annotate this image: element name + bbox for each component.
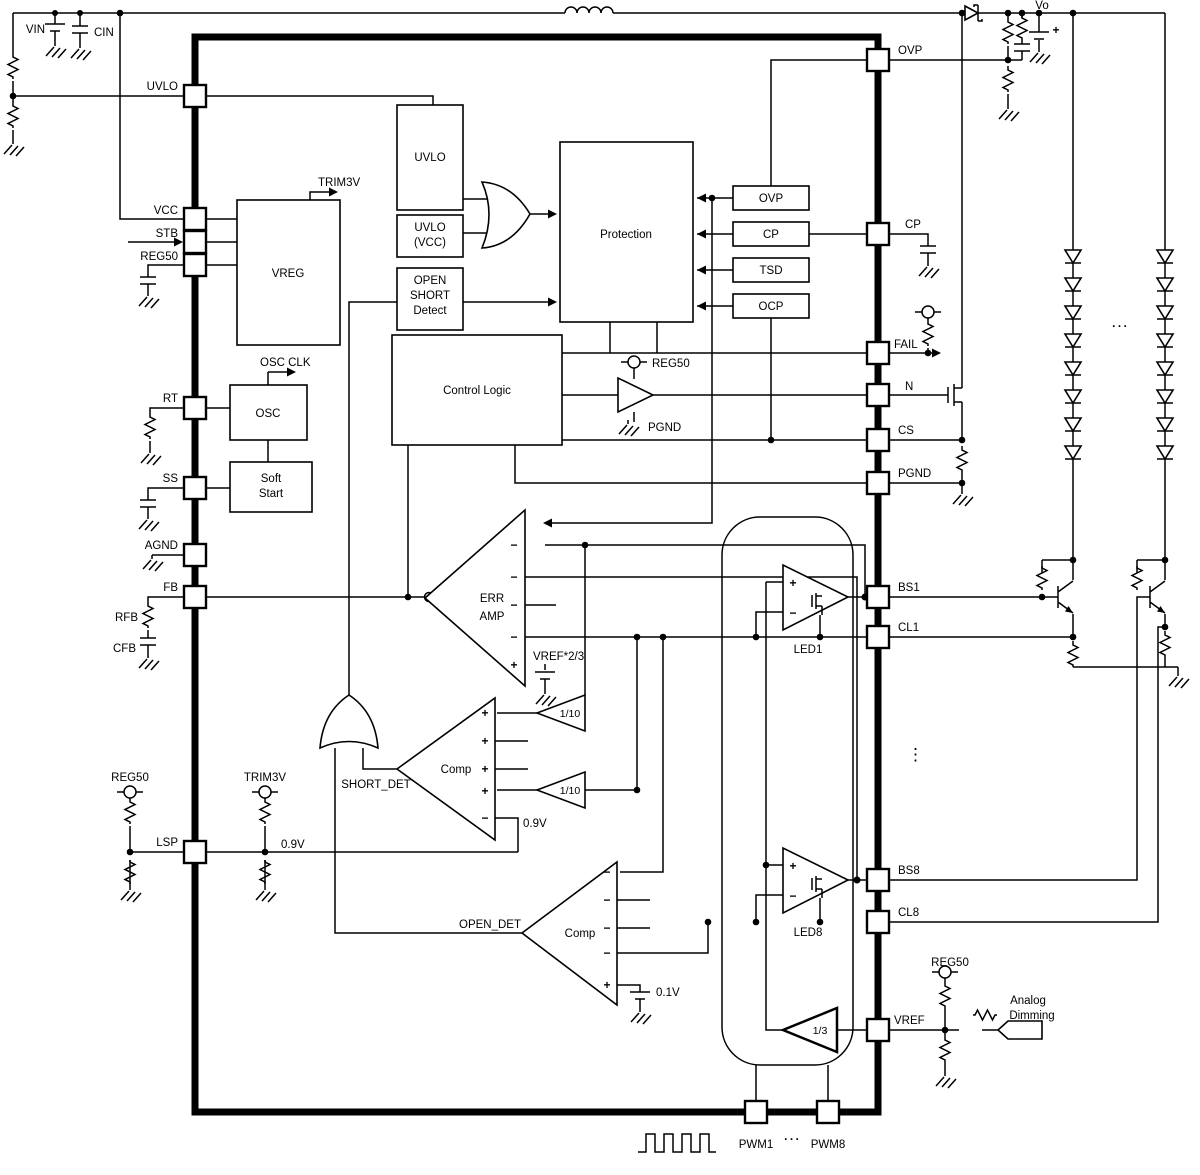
pin-label-vref: VREF	[894, 1015, 925, 1027]
short-comp-label: Comp	[441, 764, 472, 776]
schottky-diode	[965, 6, 978, 20]
vin-source	[45, 24, 65, 31]
pin-bs8	[867, 869, 889, 891]
protection-label: Protection	[600, 229, 652, 241]
erramp-minus-4: −	[510, 630, 517, 644]
pin-reg50	[184, 254, 206, 276]
uvlo-block-label: UVLO	[414, 152, 445, 164]
pin-label-cl1: CL1	[898, 622, 919, 634]
led1-plus: +	[789, 576, 796, 590]
trim3v-label: TRIM3V	[318, 177, 361, 189]
pin-label-cs: CS	[898, 425, 914, 437]
driver-reg50-label: REG50	[652, 358, 690, 370]
pin-rt	[184, 397, 206, 419]
pin-cp	[867, 223, 889, 245]
pin-label-reg50: REG50	[140, 251, 178, 263]
analog-dimming-connector	[998, 1021, 1042, 1039]
err-amp-label-1: ERR	[480, 593, 504, 605]
open-det-label: OPEN_DET	[459, 919, 521, 931]
osd-label-1: OPEN	[414, 275, 447, 287]
osc-clk-label: OSC CLK	[260, 357, 311, 369]
opencomp-minus-2: −	[603, 893, 610, 907]
led-strings-ellipsis: ...	[1111, 312, 1128, 331]
uvlo-vcc-label-2: (VCC)	[414, 237, 446, 249]
string2-transistor	[1150, 581, 1165, 613]
pin-label-ovp: OVP	[898, 45, 923, 57]
led1-minus: −	[789, 606, 796, 620]
osd-label-2: SHORT	[410, 290, 450, 302]
pin-label-bs1: BS1	[898, 582, 920, 594]
pin-pgnd	[867, 472, 889, 494]
shortcomp-plus-3: +	[481, 762, 488, 776]
shortcomp-minus: −	[481, 811, 488, 825]
driver-pgnd-label: PGND	[648, 422, 681, 434]
led-strings: ...	[889, 13, 1189, 922]
pin-n	[867, 384, 889, 406]
pin-label-pgnd: PGND	[898, 468, 931, 480]
pin-vcc	[184, 208, 206, 230]
short-det-label: SHORT_DET	[341, 779, 410, 791]
pin-label-ss: SS	[163, 473, 179, 485]
pin-label-bs8: BS8	[898, 865, 920, 877]
vref23-label: VREF*2/3	[533, 651, 584, 663]
pin-fb	[184, 586, 206, 608]
control-logic-label: Control Logic	[443, 385, 511, 397]
pin-ovp	[867, 49, 889, 71]
channel-ellipsis: ⋮	[907, 745, 925, 764]
pin-label-pwm1: PWM1	[739, 1139, 774, 1151]
div3-label: 1/3	[813, 1025, 828, 1037]
ocp-detector-label: OCP	[759, 301, 784, 313]
tsd-detector-label: TSD	[760, 265, 783, 277]
dimming-label: Dimming	[1009, 1010, 1054, 1022]
pin-cl1	[867, 626, 889, 648]
pin-agnd	[184, 544, 206, 566]
vin-label: VIN	[26, 24, 45, 36]
shortcomp-plus-1: +	[481, 706, 488, 720]
pin-ss	[184, 477, 206, 499]
led-driver-block-diagram: VIN CIN	[0, 0, 1200, 1175]
opencomp-minus-3: −	[603, 921, 610, 935]
pin-cl8	[867, 911, 889, 933]
pin-label-cp: CP	[905, 219, 921, 231]
soft-start-label-1: Soft	[261, 473, 282, 485]
string1-transistor	[1058, 581, 1073, 613]
pin-label-lsp: LSP	[156, 837, 178, 849]
pin-label-rt: RT	[163, 393, 178, 405]
led8-minus: −	[789, 889, 796, 903]
osd-label-3: Detect	[413, 305, 447, 317]
erramp-minus-3: −	[510, 598, 517, 612]
erramp-plus: +	[510, 658, 517, 672]
pin-label-n: N	[905, 381, 913, 393]
analog-label: Analog	[1010, 995, 1046, 1007]
pin-label-pwm8: PWM8	[811, 1139, 846, 1151]
pin-label-fail: FAIL	[894, 339, 918, 351]
shortcomp-plus-2: +	[481, 734, 488, 748]
stb-input-arrow	[174, 238, 183, 247]
pin-fail	[867, 342, 889, 364]
lsp-reg50-label: REG50	[111, 772, 149, 784]
led1-label: LED1	[794, 644, 823, 656]
uvlo-vcc-label-1: UVLO	[414, 222, 445, 234]
01v-label: 0.1V	[656, 987, 680, 999]
cin-label: CIN	[94, 27, 114, 39]
output-cap-plus: +	[1052, 23, 1059, 37]
div10a-label: 1/10	[560, 708, 581, 720]
uvlo-or-gate	[482, 182, 530, 248]
pin-bs1	[867, 586, 889, 608]
erramp-minus-2: −	[510, 570, 517, 584]
pin-pwm8	[817, 1101, 839, 1123]
ovp-detector-label: OVP	[759, 193, 784, 205]
pwm-waveform-icon	[638, 1134, 716, 1152]
soft-start-label-2: Start	[259, 488, 284, 500]
comp-09v-label: 0.9V	[523, 818, 547, 830]
div10b-label: 1/10	[560, 785, 581, 797]
open-comp-label: Comp	[565, 928, 596, 940]
pin-label-agnd: AGND	[145, 540, 178, 552]
pin-cs	[867, 429, 889, 451]
output-capacitor	[1029, 32, 1049, 39]
lsp-09v-label: 0.9V	[281, 839, 305, 851]
cfb-label: CFB	[113, 643, 136, 655]
led8-label: LED8	[794, 927, 823, 939]
shortcomp-plus-4: +	[481, 784, 488, 798]
vref-reg50-label: REG50	[931, 957, 969, 969]
pwm-ellipsis: ...	[783, 1125, 800, 1144]
pin-vref	[867, 1019, 889, 1041]
pin-lsp	[184, 841, 206, 863]
soft-start-block	[230, 462, 312, 512]
led8-plus: +	[789, 859, 796, 873]
lsp-trim3v-label: TRIM3V	[244, 772, 287, 784]
pin-label-uvlo: UVLO	[147, 81, 178, 93]
err-amp-label-2: AMP	[480, 611, 505, 623]
pin-label-vcc: VCC	[154, 205, 178, 217]
opencomp-minus-4: −	[603, 946, 610, 960]
pin-uvlo	[184, 85, 206, 107]
pin-pwm1	[745, 1101, 767, 1123]
external-left-components: RFB CFB REG50	[111, 238, 184, 903]
opencomp-plus: +	[603, 978, 610, 992]
divider-1-3	[783, 1008, 837, 1052]
vo-label: Vo	[1035, 0, 1048, 12]
cp-detector-label: CP	[763, 229, 779, 241]
pin-label-cl8: CL8	[898, 907, 919, 919]
opencomp-minus-1: −	[603, 865, 610, 879]
schematic-canvas: VIN CIN	[0, 0, 1200, 1175]
inductor	[565, 7, 613, 13]
vreg-label: VREG	[272, 268, 305, 280]
pin-stb	[184, 231, 206, 253]
fault-or-gate	[320, 695, 378, 748]
erramp-minus-1: −	[510, 538, 517, 552]
fail-output-arrow	[932, 349, 941, 358]
rfb-label: RFB	[115, 612, 138, 624]
external-power-stage: Vo +	[889, 0, 1165, 506]
pin-label-fb: FB	[163, 582, 178, 594]
gate-driver	[618, 378, 653, 412]
osc-label: OSC	[256, 408, 281, 420]
